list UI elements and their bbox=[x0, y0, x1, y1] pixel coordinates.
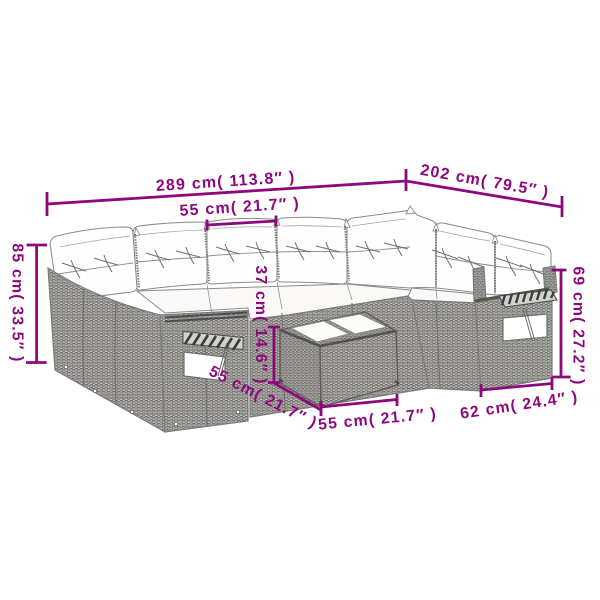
svg-text:62 cm( 24.4″ ): 62 cm( 24.4″ ) bbox=[459, 388, 579, 422]
svg-text:69 cm( 27.2″ ): 69 cm( 27.2″ ) bbox=[570, 266, 587, 385]
svg-text:289 cm( 113.8″ ): 289 cm( 113.8″ ) bbox=[155, 169, 296, 195]
svg-text:85 cm( 33.5″ ): 85 cm( 33.5″ ) bbox=[9, 243, 26, 362]
svg-text:37 cm( 14.6″ ): 37 cm( 14.6″ ) bbox=[252, 265, 269, 384]
svg-text:55 cm( 21.7″ ): 55 cm( 21.7″ ) bbox=[317, 405, 437, 433]
svg-text:55 cm( 21.7″ ): 55 cm( 21.7″ ) bbox=[179, 195, 300, 220]
